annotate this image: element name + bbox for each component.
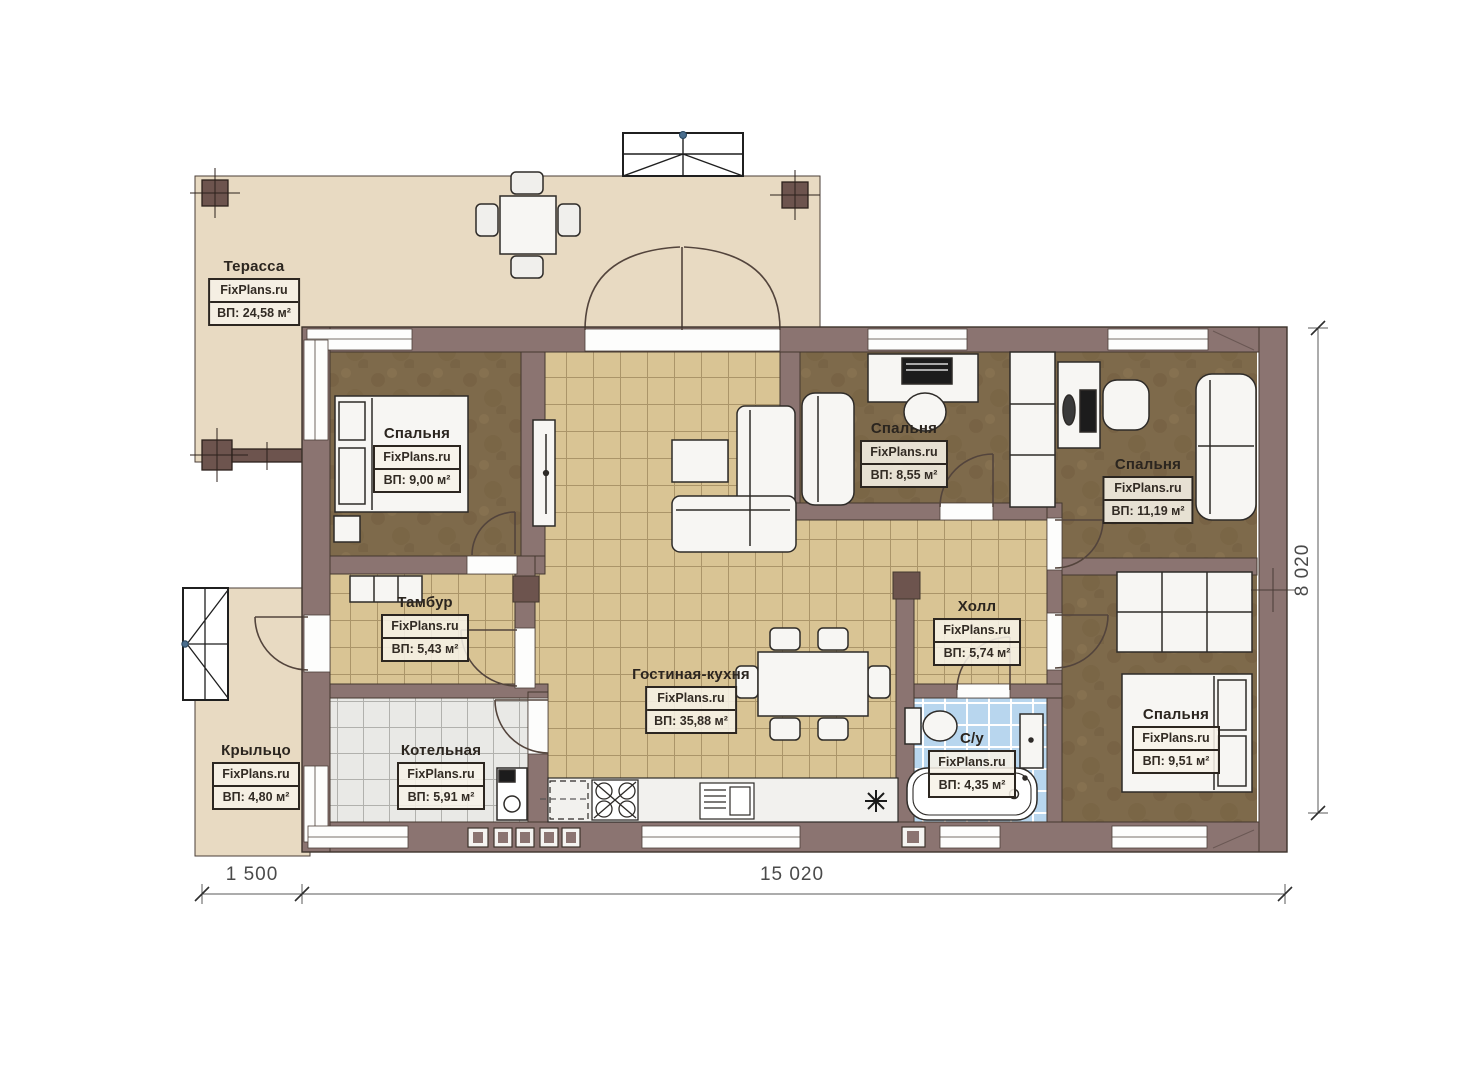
room-label-terrace: Терасса FixPlans.ru ВП: 24,58 м² — [208, 258, 300, 326]
dimension-right: 8 020 — [1292, 544, 1314, 597]
room-label-bedroom-right: Спальня FixPlans.ru ВП: 11,19 м² — [1102, 456, 1193, 524]
room-name: Спальня — [860, 420, 948, 437]
room-label-hall: Холл FixPlans.ru ВП: 5,74 м² — [933, 598, 1021, 666]
room-label-living-kitchen: Гостиная-кухня FixPlans.ru ВП: 35,88 м² — [632, 666, 750, 734]
watermark: FixPlans.ru — [383, 616, 467, 637]
room-name: Холл — [933, 598, 1021, 615]
room-area: ВП: 11,19 м² — [1104, 499, 1191, 522]
room-name: Гостиная-кухня — [632, 666, 750, 683]
wardrobe-bottom — [1117, 572, 1252, 652]
watermark: FixPlans.ru — [647, 688, 735, 709]
room-area: ВП: 8,55 м² — [862, 463, 946, 486]
porch-steps-icon — [182, 588, 228, 700]
room-name: Крыльцо — [212, 742, 300, 759]
sink-unit — [700, 783, 754, 819]
room-area: ВП: 24,58 м² — [210, 301, 298, 324]
room-label-bedroom-left: Спальня FixPlans.ru ВП: 9,00 м² — [373, 425, 461, 493]
coffee-table — [672, 440, 728, 482]
tv-unit — [533, 420, 555, 526]
room-name: Спальня — [1102, 456, 1193, 473]
watermark: FixPlans.ru — [862, 442, 946, 463]
room-label-boiler: Котельная FixPlans.ru ВП: 5,91 м² — [397, 742, 485, 810]
floorplan-canvas: Терасса FixPlans.ru ВП: 24,58 м² Спальня… — [0, 0, 1473, 1080]
room-area: ВП: 9,00 м² — [375, 468, 459, 491]
watermark: FixPlans.ru — [930, 752, 1014, 773]
room-name: Котельная — [397, 742, 485, 759]
kitchen-counter — [548, 778, 898, 822]
boiler-unit — [497, 768, 527, 820]
room-area: ВП: 5,91 м² — [399, 785, 483, 808]
floorplan-drawing — [0, 0, 1473, 1080]
dimension-left: 1 500 — [226, 864, 279, 886]
wardrobe-middle — [1010, 352, 1055, 507]
watermark: FixPlans.ru — [935, 620, 1019, 641]
french-door-threshold — [585, 329, 780, 351]
room-name: С/у — [928, 730, 1016, 747]
dimension-bottom: 15 020 — [760, 864, 824, 886]
watermark: FixPlans.ru — [1104, 478, 1191, 499]
room-name: Тамбур — [381, 594, 469, 611]
watermark: FixPlans.ru — [375, 447, 459, 468]
stove-icon — [592, 780, 638, 820]
watermark: FixPlans.ru — [210, 280, 298, 301]
watermark: FixPlans.ru — [1134, 728, 1218, 749]
room-name: Терасса — [208, 258, 300, 275]
room-area: ВП: 9,51 м² — [1134, 749, 1218, 772]
room-name: Спальня — [1132, 706, 1220, 723]
porch-door-opening — [304, 615, 330, 672]
room-area: ВП: 5,74 м² — [935, 641, 1019, 664]
room-label-porch: Крыльцо FixPlans.ru ВП: 4,80 м² — [212, 742, 300, 810]
fridge-symbol — [865, 790, 887, 812]
watermark: FixPlans.ru — [214, 764, 298, 785]
room-label-bedroom-middle: Спальня FixPlans.ru ВП: 8,55 м² — [860, 420, 948, 488]
room-area: ВП: 4,80 м² — [214, 785, 298, 808]
room-area: ВП: 35,88 м² — [647, 709, 735, 732]
room-label-bedroom-bottom: Спальня FixPlans.ru ВП: 9,51 м² — [1132, 706, 1220, 774]
room-label-tambour: Тамбур FixPlans.ru ВП: 5,43 м² — [381, 594, 469, 662]
room-area: ВП: 5,43 м² — [383, 637, 467, 660]
watermark: FixPlans.ru — [399, 764, 483, 785]
room-name: Спальня — [373, 425, 461, 442]
room-label-bathroom: С/у FixPlans.ru ВП: 4,35 м² — [928, 730, 1016, 798]
terrace-steps-icon — [623, 132, 743, 177]
room-area: ВП: 4,35 м² — [930, 773, 1014, 796]
